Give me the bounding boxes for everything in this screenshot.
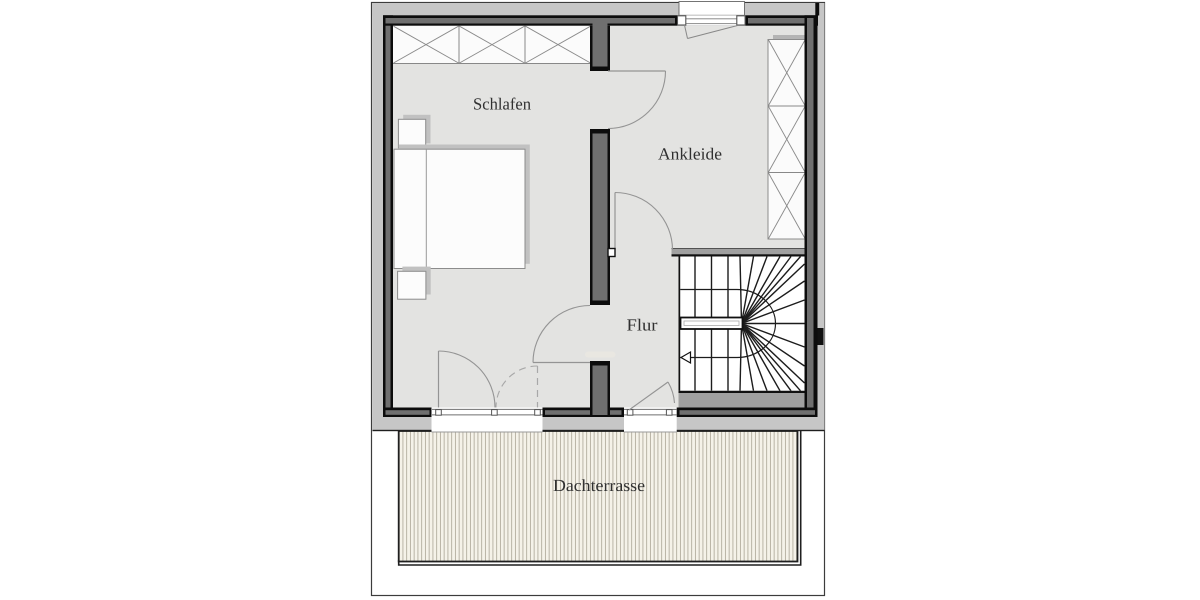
svg-text:Dachterrasse: Dachterrasse: [553, 476, 645, 495]
svg-text:Ankleide: Ankleide: [658, 144, 722, 163]
svg-text:Schlafen: Schlafen: [473, 94, 531, 113]
svg-text:Flur: Flur: [626, 315, 657, 334]
